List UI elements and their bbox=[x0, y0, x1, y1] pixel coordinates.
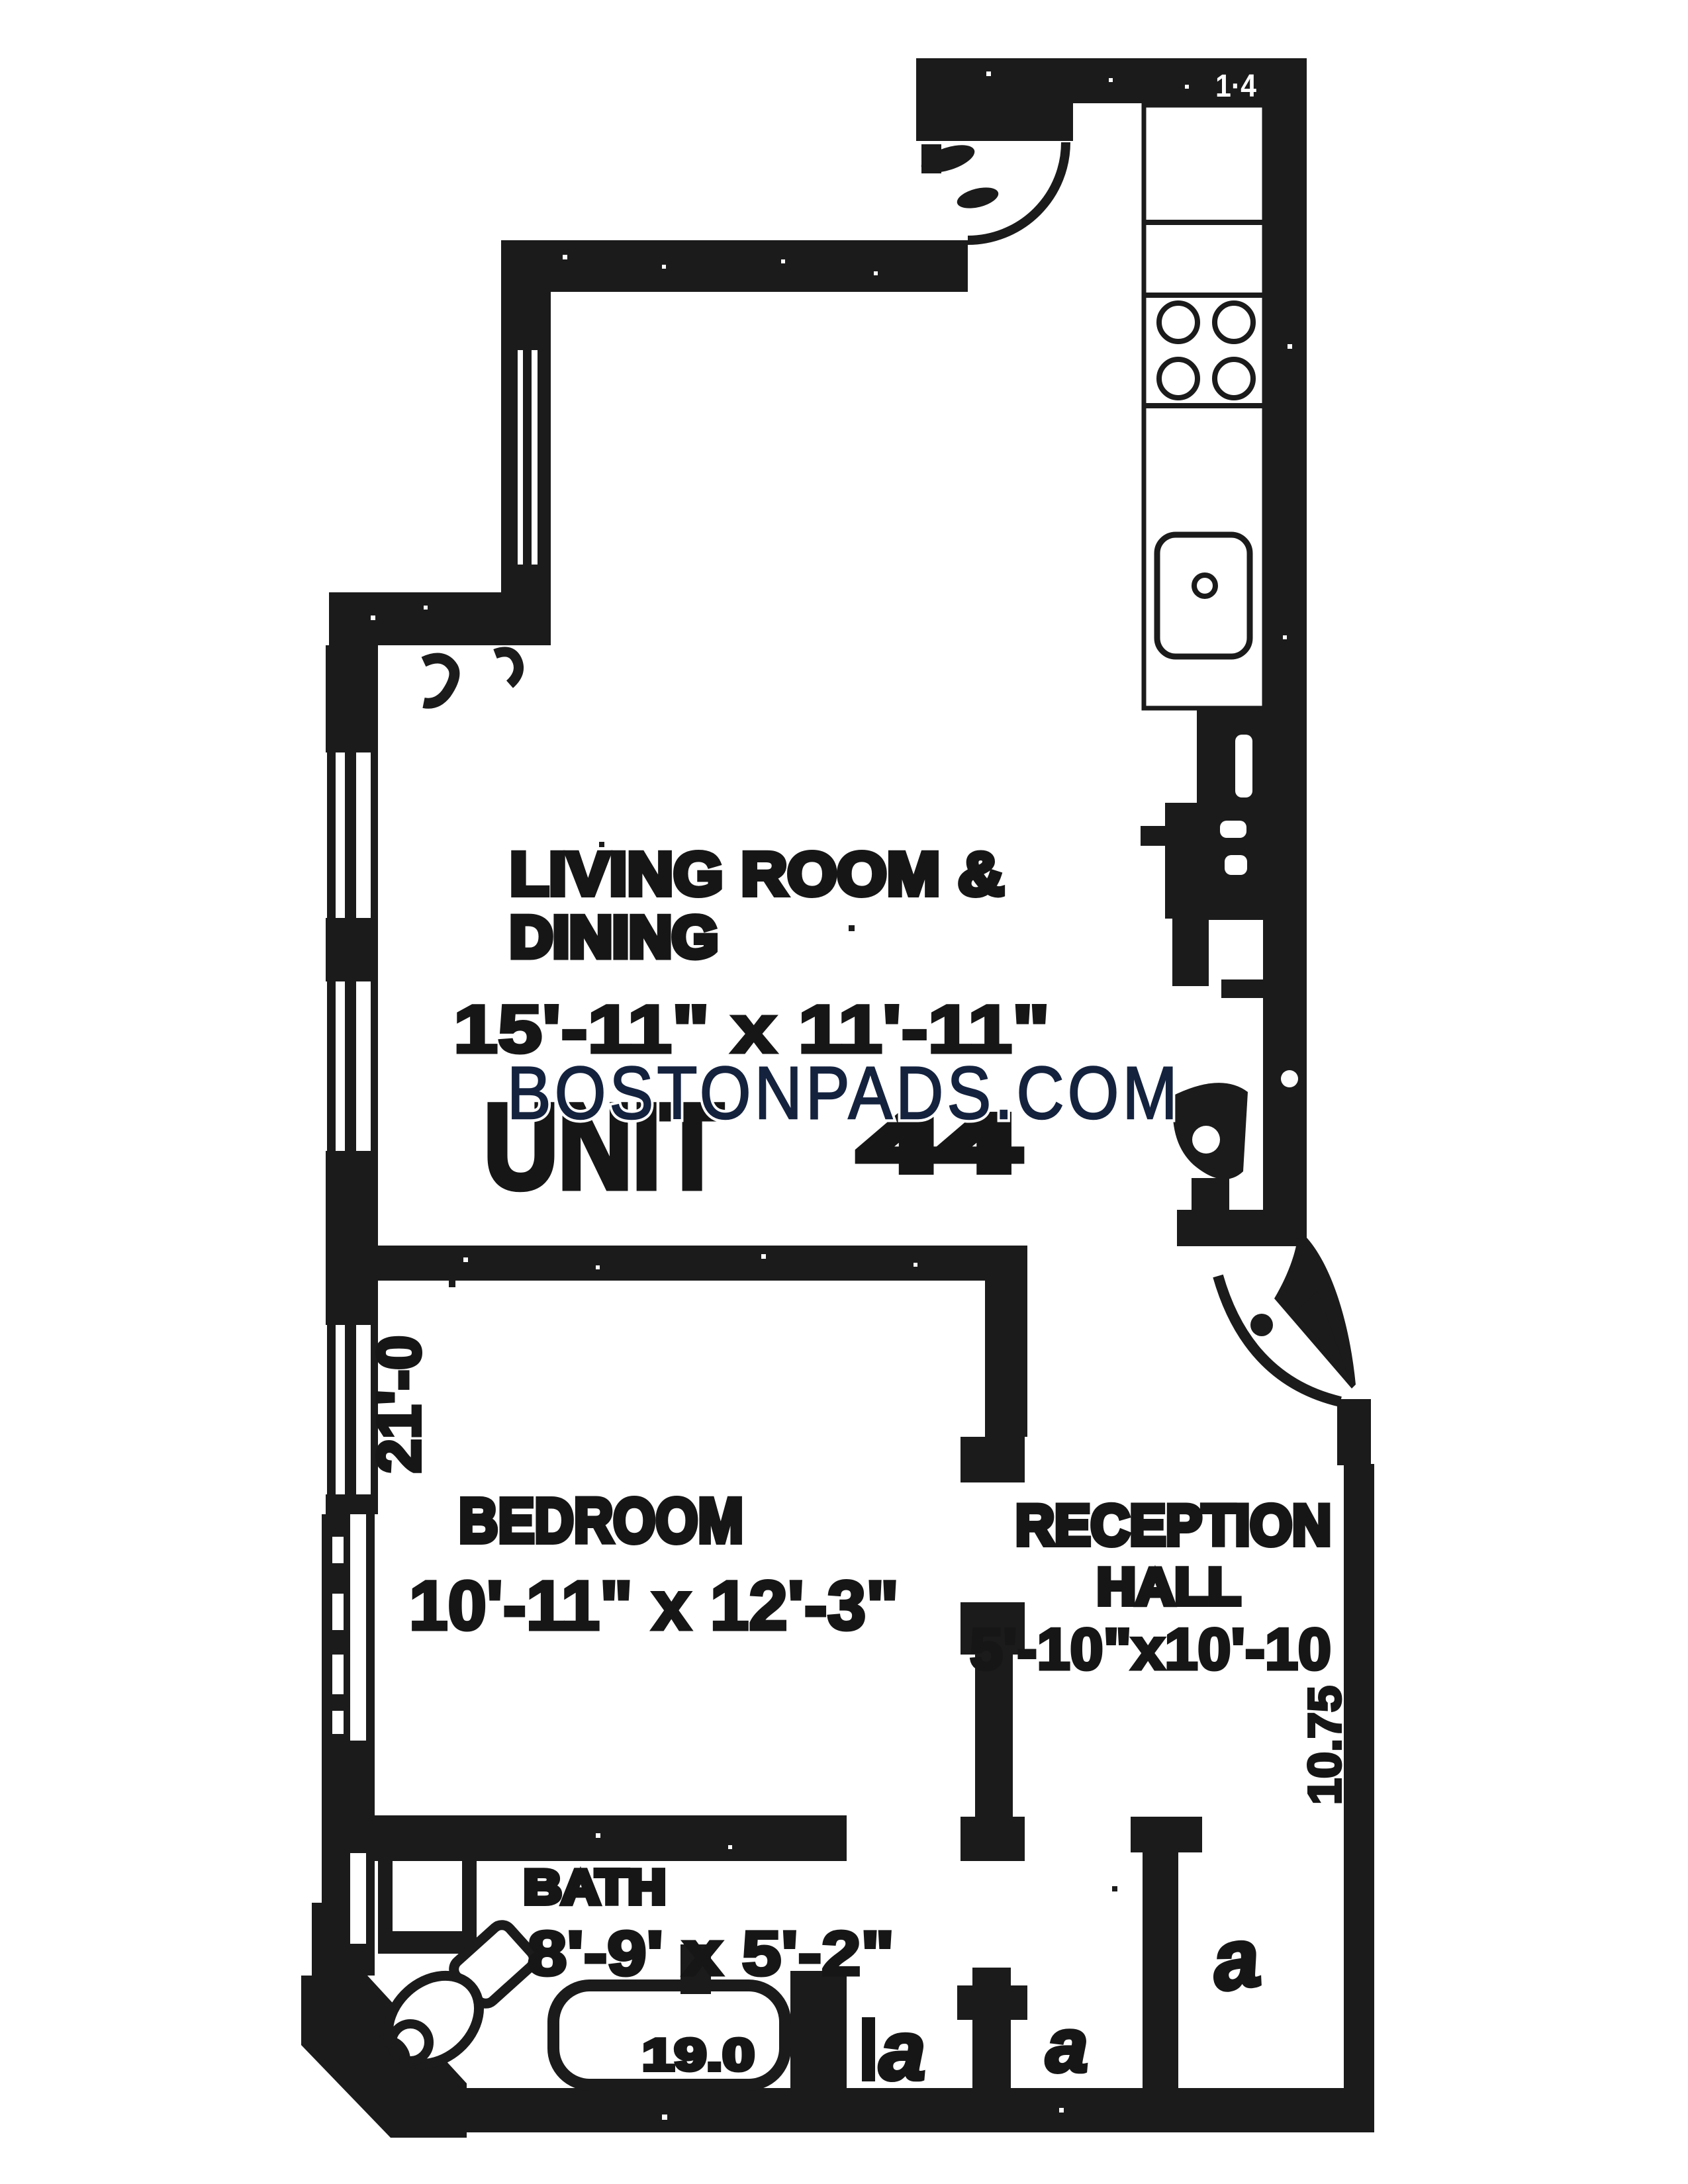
svg-text:HALL: HALL bbox=[1097, 1557, 1241, 1615]
svg-text:BATH: BATH bbox=[524, 1861, 666, 1914]
svg-text:DINING: DINING bbox=[510, 904, 718, 970]
svg-text:a: a bbox=[1046, 2004, 1088, 2088]
svg-text:RECEPTION: RECEPTION bbox=[1015, 1494, 1331, 1557]
svg-text:5'-10"x10'-10: 5'-10"x10'-10 bbox=[970, 1616, 1331, 1682]
svg-text:21'-0: 21'-0 bbox=[365, 1336, 433, 1473]
svg-text:BEDROOM: BEDROOM bbox=[459, 1486, 743, 1556]
svg-text:19.0: 19.0 bbox=[642, 2030, 755, 2080]
svg-text:10.75: 10.75 bbox=[1299, 1686, 1350, 1805]
svg-text:a: a bbox=[879, 2004, 925, 2097]
svg-text:BOSTONPADS.COM: BOSTONPADS.COM bbox=[507, 1052, 1181, 1134]
svg-text:1·4: 1·4 bbox=[1215, 69, 1256, 104]
svg-text:10'-11" x 12'-3": 10'-11" x 12'-3" bbox=[409, 1567, 899, 1645]
svg-text:LIVING ROOM &: LIVING ROOM & bbox=[510, 841, 1004, 908]
svg-text:8'-9' x 5'-2": 8'-9' x 5'-2" bbox=[528, 1919, 894, 1989]
